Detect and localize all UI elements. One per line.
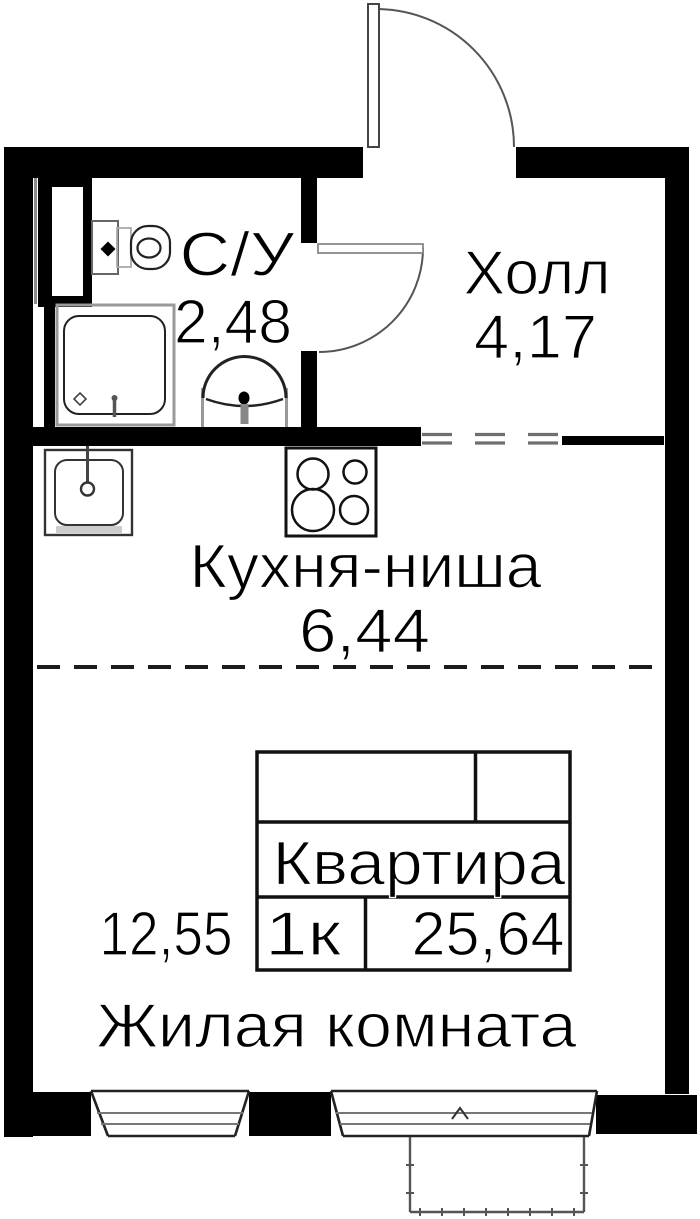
svg-text:12,55: 12,55 (100, 900, 233, 969)
svg-text:25,64: 25,64 (412, 900, 565, 969)
svg-text:4,17: 4,17 (474, 303, 597, 372)
svg-text:С/У: С/У (180, 221, 296, 290)
svg-text:Холл: Холл (464, 239, 611, 308)
svg-text:Кухня-ниша: Кухня-ниша (190, 533, 543, 602)
svg-text:Жилая комната: Жилая комната (97, 992, 578, 1061)
svg-text:Квартира: Квартира (273, 830, 567, 899)
svg-text:1к: 1к (265, 900, 342, 969)
svg-text:2,48: 2,48 (174, 288, 292, 357)
svg-text:6,44: 6,44 (299, 597, 430, 666)
